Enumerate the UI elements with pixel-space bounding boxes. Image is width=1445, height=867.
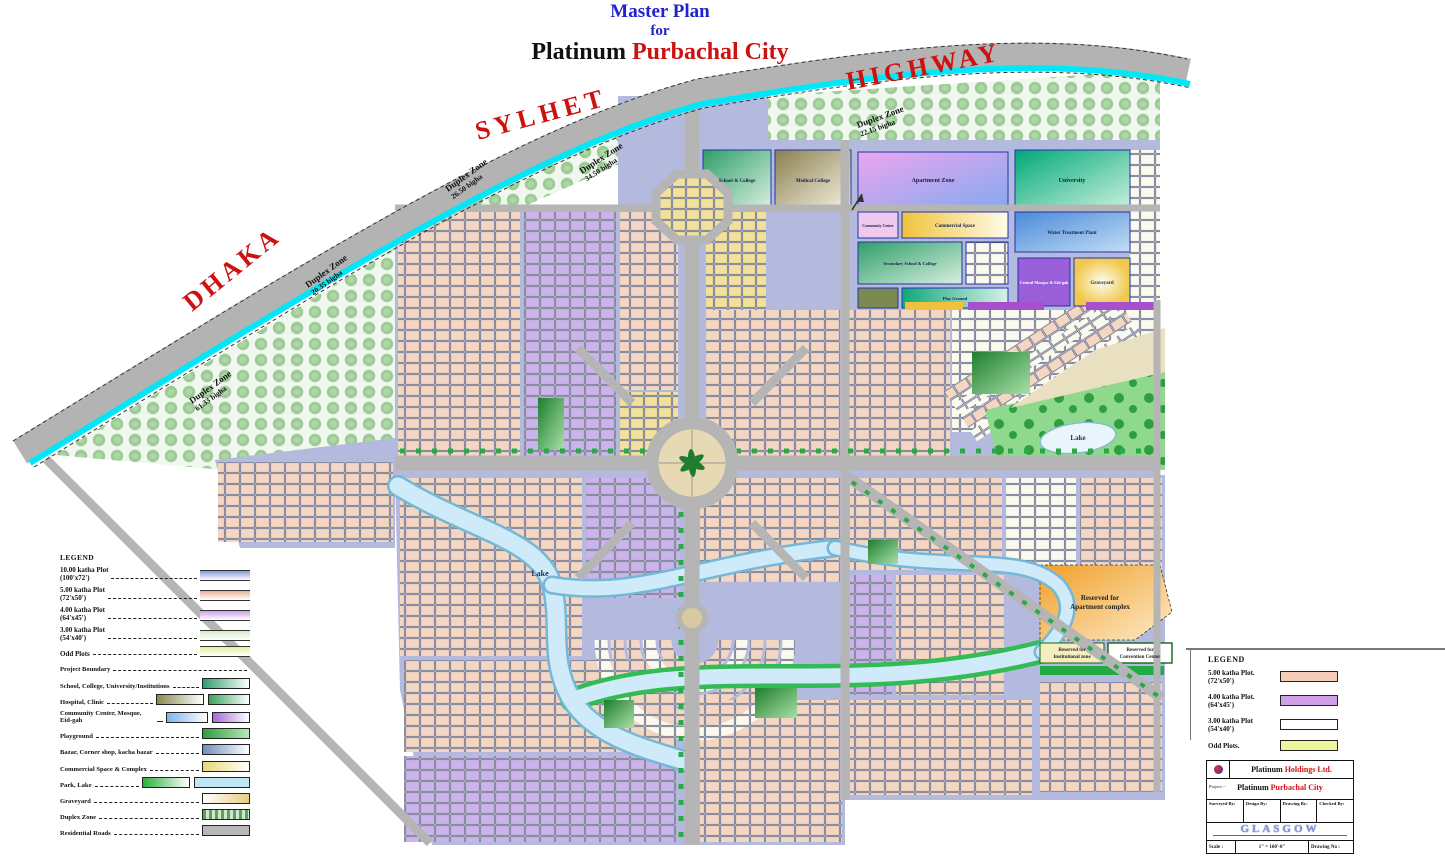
- project-name-black: Platinum: [1237, 783, 1271, 792]
- legend-right-title: LEGEND: [1208, 655, 1358, 664]
- playground-block: [755, 688, 797, 718]
- legend-label: 10.00 katha Plot: [60, 566, 108, 574]
- playground-block: [972, 352, 1030, 394]
- legend-row: 10.00 katha Plot(100'x72'): [60, 566, 250, 582]
- legend-row: Playground: [60, 728, 250, 740]
- small-plots-block: [966, 242, 1008, 284]
- legend-label: 5.00 katha Plot: [60, 586, 105, 594]
- legend-swatch-10katha: [200, 570, 250, 581]
- design-by-cell: Design By:: [1244, 800, 1281, 822]
- legend-row: Odd Plots: [60, 646, 250, 658]
- firm-name: GLASGOW: [1207, 823, 1353, 835]
- company-logo: [1207, 761, 1230, 778]
- legend-swatch-3katha: [1280, 719, 1338, 730]
- reserved-apartment-label: Apartment complex: [1070, 603, 1130, 611]
- plot-block: [706, 310, 950, 468]
- plot-block: [700, 700, 842, 842]
- legend-row: Hospital, Clinic: [60, 694, 250, 706]
- commercial-label: Commercial Space: [935, 224, 976, 229]
- reserved-convention-label: Reserved for: [1126, 648, 1154, 653]
- legend-label: Hospital, Clinic: [60, 699, 104, 706]
- legend-label: Residential Roads: [60, 830, 111, 837]
- legend-row: Community Center, Mosque, Eid-gah: [60, 710, 250, 724]
- community-label: Community Center: [862, 224, 894, 228]
- legend-dims: (72'x50'): [60, 594, 86, 602]
- legend-swatch-mosque: [212, 712, 250, 723]
- legend-row: Bazar, Corner shop, kacha bazar: [60, 744, 250, 756]
- legend-left-features: Project Boundary School, College, Univer…: [60, 666, 250, 837]
- commercial-bar: [968, 302, 1044, 310]
- legend-swatch-school: [202, 678, 250, 689]
- plot-block: [1130, 150, 1160, 305]
- playground-label: Play Ground: [943, 296, 968, 301]
- legend-row: Duplex Zone: [60, 809, 250, 821]
- legend-swatch-duplex: [202, 809, 250, 820]
- water-plant-label: Water Treatment Plant: [1047, 231, 1097, 236]
- playground-block: [868, 540, 898, 564]
- legend-swatch-odd: [200, 646, 250, 657]
- logo-icon: [1214, 765, 1223, 774]
- legend-swatch-3katha: [200, 630, 250, 641]
- legend-dims: (72'x50'): [1208, 677, 1234, 685]
- legend-dims: (54'x40'): [60, 634, 86, 642]
- reserved-institutional-label: Reserved for: [1058, 648, 1086, 653]
- title-block-scale-row: Scale : 1" = 160'-0" Drawing No :: [1207, 841, 1353, 853]
- legend-swatch-park: [142, 777, 190, 788]
- title-block-firm-row: GLASGOW: [1207, 823, 1353, 841]
- project-label: Project :-: [1209, 784, 1226, 789]
- project-name: Platinum Purbachal City: [1207, 783, 1353, 792]
- legend-label: Playground: [60, 733, 93, 740]
- legend-label: Odd Plots.: [1208, 742, 1240, 750]
- legend-swatch-graveyard: [202, 793, 250, 804]
- legend-label: 4.00 katha Plot.: [1208, 693, 1255, 701]
- title-line1: Master Plan: [0, 2, 1320, 23]
- legend-dims: (100'x72'): [60, 574, 90, 582]
- scale-label: Scale :: [1207, 841, 1236, 853]
- legend-swatch-playground: [202, 728, 250, 739]
- legend-row: 4.00 katha Plot(64'x45'): [60, 606, 250, 622]
- legend-row: Commercial Space & Complex: [60, 761, 250, 773]
- title-block-project-row: Project :- Platinum Purbachal City: [1207, 783, 1353, 800]
- legend-label: Duplex Zone: [60, 814, 96, 821]
- plot-block: [850, 700, 1032, 795]
- reserved-institutional-label: Institutional zone: [1053, 655, 1091, 660]
- legend-label: 3.00 katha Plot: [1208, 717, 1253, 725]
- legend-label: Odd Plots: [60, 650, 90, 658]
- legend-swatch-hospital: [156, 694, 204, 705]
- title-platinum: Platinum: [531, 39, 626, 65]
- company-name-red: Holdings Ltd.: [1285, 765, 1332, 774]
- legend-label: School, College, University/Institutions: [60, 683, 170, 690]
- green-strip: [1040, 666, 1164, 675]
- commercial-bar: [1086, 302, 1156, 310]
- drawing-no-label: Drawing No :: [1309, 841, 1353, 853]
- legend-swatch-commercial: [202, 761, 250, 772]
- plot-block: [1006, 478, 1076, 570]
- commercial-octagon: [656, 174, 728, 240]
- central-roundabout: [652, 423, 732, 503]
- scale-value: 1" = 160'-0": [1236, 841, 1309, 853]
- legend-row: 4.00 katha Plot.(64'x45'): [1208, 693, 1358, 710]
- title-line2: for: [0, 23, 1320, 40]
- legend-dims: (64'x45'): [60, 614, 86, 622]
- legend-row: 3.00 katha Plot(54'x40'): [1208, 717, 1358, 734]
- legend-row: Park, Lake: [60, 777, 250, 789]
- divider-rule: [1186, 648, 1445, 650]
- playground-block: [538, 398, 564, 450]
- legend-label: Graveyard: [60, 798, 91, 805]
- mosque-label: Central Mosque & Eid-gah: [1020, 280, 1069, 285]
- plot-block: [1080, 478, 1162, 570]
- master-plan-sheet: DHAKA SYLHET HIGHWAY Duplex Zone26.50 bi…: [0, 0, 1445, 867]
- legend-right: LEGEND 5.00 katha Plot.(72'x50') 4.00 ka…: [1208, 655, 1358, 759]
- plot-block: [524, 212, 616, 468]
- legend-swatch-lake: [194, 777, 250, 788]
- legend-left: LEGEND 10.00 katha Plot(100'x72') 5.00 k…: [60, 553, 250, 841]
- reserved-apartment-label: Reserved for: [1081, 594, 1119, 602]
- plot-block: [398, 212, 520, 468]
- legend-swatch-roads: [202, 825, 250, 836]
- lake-right-label: Lake: [1070, 434, 1085, 442]
- legend-label: 5.00 katha Plot.: [1208, 669, 1255, 677]
- legend-swatch-5katha: [1280, 671, 1338, 682]
- reserved-convention-label: Convention Center: [1120, 655, 1161, 660]
- legend-dims: (54'x40'): [1208, 725, 1234, 733]
- school-label: School & College: [719, 179, 756, 184]
- legend-swatch-community: [166, 712, 209, 723]
- title-block: Platinum Holdings Ltd. Project :- Platin…: [1206, 760, 1354, 854]
- legend-row: Project Boundary: [60, 666, 250, 673]
- apartment-label: Apartment Zone: [912, 178, 955, 184]
- plot-block: [218, 462, 393, 542]
- company-name-black: Platinum: [1251, 765, 1285, 774]
- legend-row: Graveyard: [60, 793, 250, 805]
- surveyed-by-cell: Surveyed By:: [1207, 800, 1244, 822]
- title-line3: Platinum Purbachal City: [0, 39, 1320, 65]
- plot-block: [404, 756, 676, 842]
- playground-block: [604, 700, 634, 728]
- legend-row: Odd Plots.: [1208, 740, 1358, 752]
- university-label: University: [1059, 178, 1086, 184]
- legend-swatch-4katha: [1280, 695, 1338, 706]
- legend-label: Bazar, Corner shop, kacha bazar: [60, 749, 153, 756]
- legend-label: Park, Lake: [60, 782, 92, 789]
- drawing-by-cell: Drawing By:: [1281, 800, 1318, 822]
- legend-row: 5.00 katha Plot.(72'x50'): [1208, 669, 1358, 686]
- sheet-title: Master Plan for Platinum Purbachal City: [0, 2, 1320, 66]
- legend-label: Community Center, Mosque, Eid-gah: [60, 710, 154, 724]
- commercial-bar: [905, 302, 963, 310]
- secondary-school-label: Secondary School & College: [883, 261, 936, 266]
- project-name-red: Purbachal City: [1271, 783, 1323, 792]
- legend-swatch-5katha: [200, 590, 250, 601]
- lake-left-label: Lake: [531, 569, 549, 578]
- title-block-company-row: Platinum Holdings Ltd.: [1207, 761, 1353, 779]
- legend-label: Project Boundary: [60, 666, 110, 673]
- graveyard-label: Graveyard: [1090, 281, 1114, 286]
- legend-row: Residential Roads: [60, 825, 250, 837]
- legend-row: 5.00 katha Plot(72'x50'): [60, 586, 250, 602]
- legend-swatch-clinic: [208, 694, 250, 705]
- company-name: Platinum Holdings Ltd.: [1230, 765, 1353, 774]
- police-block: [858, 288, 898, 308]
- medical-label: Medical College: [796, 179, 831, 184]
- checked-by-cell: Checked By:: [1317, 800, 1353, 822]
- plot-block: [1040, 682, 1162, 792]
- firm-subtitle-rule: [1213, 835, 1347, 836]
- lower-node: [679, 605, 705, 631]
- title-purbachal: Purbachal City: [632, 39, 789, 65]
- title-block-signature-row: Surveyed By: Design By: Drawing By: Chec…: [1207, 800, 1353, 823]
- legend-swatch-bazar: [202, 744, 250, 755]
- legend-label: 4.00 katha Plot: [60, 606, 105, 614]
- legend-label: 3.00 katha Plot: [60, 626, 105, 634]
- legend-label: Commercial Space & Complex: [60, 766, 147, 773]
- legend-left-title: LEGEND: [60, 553, 250, 562]
- legend-row: 3.00 katha Plot(54'x40'): [60, 626, 250, 642]
- legend-dims: (64'x45'): [1208, 701, 1234, 709]
- legend-swatch-odd: [1280, 740, 1338, 751]
- divider-rule-vertical: [1190, 648, 1191, 740]
- legend-swatch-4katha: [200, 610, 250, 621]
- legend-row: School, College, University/Institutions: [60, 678, 250, 690]
